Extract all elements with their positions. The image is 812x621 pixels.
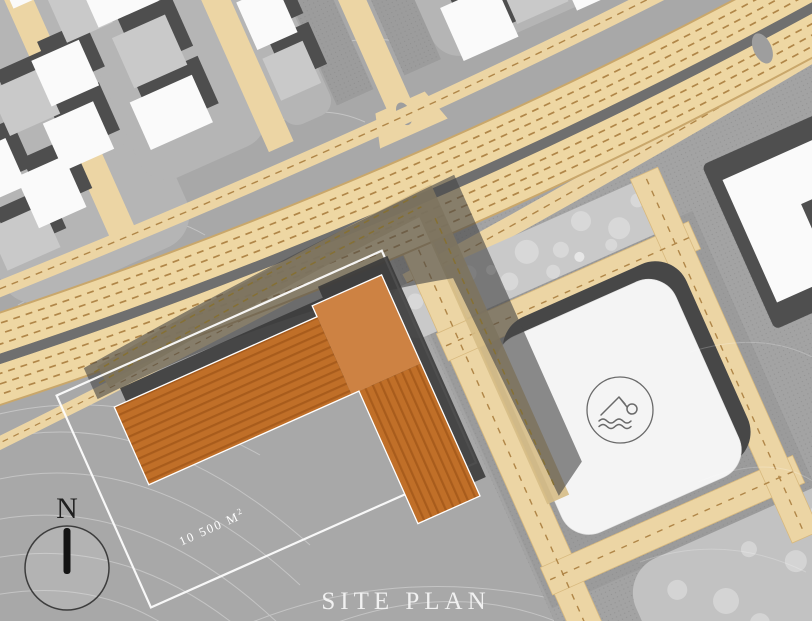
- site-plan-title: SITE PLAN: [321, 588, 490, 615]
- site-plan-map: 10 500 M2 N SITE PLAN: [0, 0, 812, 621]
- compass-label: N: [56, 492, 78, 525]
- compass-needle-icon: [64, 528, 71, 574]
